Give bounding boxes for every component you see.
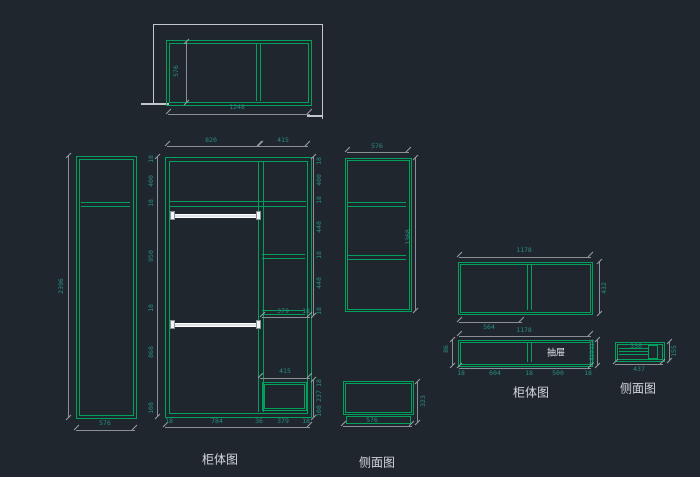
cabinet-lip-line [458, 314, 522, 315]
rod-end-bracket [170, 211, 175, 220]
dim-text: 237 [315, 390, 323, 402]
dim-text: 379 [277, 307, 289, 315]
left-cabinet-outline [76, 156, 137, 419]
dim-text: 108 [315, 405, 323, 417]
side-view-outline [345, 158, 412, 312]
dim-line [76, 430, 135, 431]
side-view-shelf [348, 255, 406, 260]
dim-text: 950 [147, 250, 155, 262]
dim-text: 500 [552, 369, 564, 377]
dim-text: 18 [315, 307, 323, 315]
drawer-slide-line [619, 354, 649, 355]
dim-text: 576 [371, 142, 383, 150]
wall-line-top [153, 24, 323, 25]
dim-text-width: 576 [99, 419, 111, 427]
shoe-shelf-box [262, 382, 307, 411]
dim-line [417, 382, 418, 422]
top-view-cabinet-outline [166, 40, 312, 106]
dim-line [313, 157, 314, 315]
drawer-slide-line [619, 351, 649, 352]
dim-line [262, 317, 310, 318]
right-column-shelf [262, 254, 305, 259]
dim-line [347, 152, 409, 153]
dim-text: 18 [147, 199, 155, 207]
dim-line [157, 157, 158, 416]
dim-text: 18 [147, 155, 155, 163]
main-cabinet-top-shelf [170, 201, 306, 207]
hanging-rod [174, 323, 256, 327]
drawer-label: 抽屉 [547, 346, 565, 359]
dim-line [260, 146, 308, 147]
dim-text: 336 [630, 342, 642, 350]
dim-line [313, 380, 314, 417]
title-cabinet-view-left: 柜体图 [202, 451, 238, 468]
dim-line [186, 42, 187, 102]
dim-text: 36 [255, 417, 263, 425]
dim-text: 323 [419, 395, 427, 407]
dim-text: 18 [147, 304, 155, 312]
dim-text: 108 [147, 402, 155, 414]
dim-text: 448 [315, 277, 323, 289]
dim-line [452, 340, 453, 365]
dim-text: 415 [279, 367, 291, 375]
dim-text: 868 [147, 346, 155, 358]
dim-text: 415 [277, 136, 289, 144]
rod-end-bracket [256, 320, 261, 329]
rod-end-bracket [170, 320, 175, 329]
cad-canvas[interactable]: 576 1248 2396 576 820 415 18 784 [0, 0, 700, 477]
dim-text-width: 1248 [229, 103, 245, 111]
drawer-cabinet-partition [527, 343, 532, 362]
dim-line [459, 336, 591, 337]
side-view-outline [343, 381, 414, 415]
wall-line-right [322, 24, 323, 119]
drawer-cabinet-outline [458, 340, 593, 367]
wall-line-left [153, 24, 154, 105]
dim-text: 18 [315, 157, 323, 165]
dim-text: 400 [147, 175, 155, 187]
dim-line [68, 156, 69, 417]
dim-text: 155 [670, 345, 678, 357]
dim-text: 784 [211, 417, 223, 425]
plinth-outline [346, 416, 411, 424]
dim-line [415, 158, 416, 310]
dim-text-height: 2396 [57, 278, 65, 294]
dim-text: 18 [302, 417, 310, 425]
dim-text: 432 [600, 282, 608, 294]
dim-text: 379 [277, 417, 289, 425]
dim-text: 576 [366, 416, 378, 424]
top-view-partition [256, 44, 261, 101]
dim-text-depth: 576 [172, 65, 180, 77]
dim-text: 604 [489, 369, 501, 377]
dim-line [343, 426, 412, 427]
dim-text: 18 [525, 369, 533, 377]
hanging-rod [174, 214, 256, 218]
drawer-bracket [648, 345, 658, 359]
dim-text: 18 [457, 369, 465, 377]
dim-text: 86 [442, 345, 450, 353]
dim-text: 18 [165, 417, 173, 425]
dim-text: 448 [315, 221, 323, 233]
side-view-shelf [348, 202, 406, 207]
dim-text: 437 [633, 365, 645, 373]
dim-text: 1178 [516, 246, 532, 254]
dim-text: 1178 [516, 326, 532, 334]
upper-cabinet-outline [458, 262, 593, 315]
dim-text: 18 [315, 196, 323, 204]
dim-text: 18 [302, 307, 310, 315]
dim-line [597, 340, 598, 365]
upper-cabinet-partition [527, 265, 532, 310]
dim-text: 400 [315, 174, 323, 186]
dim-text: 18 [315, 379, 323, 387]
wall-stub-left [141, 103, 169, 105]
dim-text: 1368 [404, 229, 412, 245]
title-side-view-left: 侧面图 [359, 454, 395, 471]
title-cabinet-view-right: 柜体图 [513, 384, 549, 401]
left-cabinet-shelf [81, 202, 130, 207]
dim-line [260, 378, 310, 379]
dim-line [167, 146, 260, 147]
dim-text: 564 [483, 323, 495, 331]
title-side-view-right: 侧面图 [620, 380, 656, 397]
dim-line [459, 257, 591, 258]
dim-text: 820 [205, 136, 217, 144]
dim-text: 18 [584, 369, 592, 377]
rod-end-bracket [256, 211, 261, 220]
dim-text: 18 [315, 251, 323, 259]
wall-stub-right [307, 115, 323, 117]
dim-line [165, 427, 310, 428]
dim-line [168, 114, 310, 115]
